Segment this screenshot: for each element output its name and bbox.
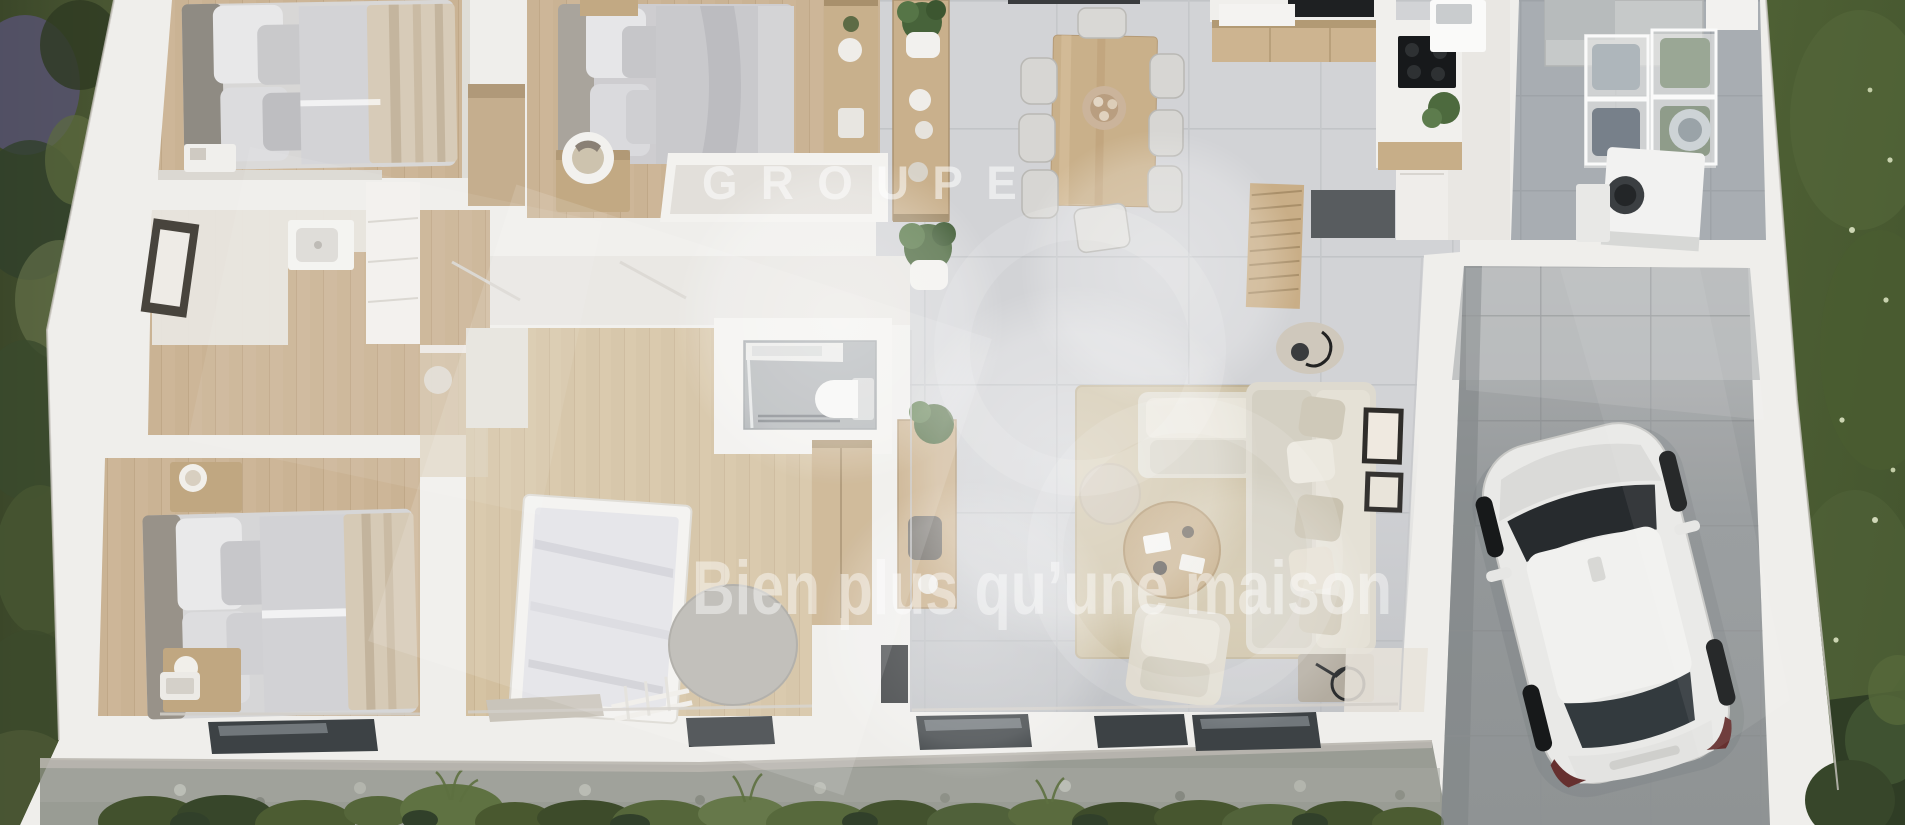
svg-text:Bien plus qu’une maison: Bien plus qu’une maison	[692, 546, 1392, 631]
svg-text:GROUPE: GROUPE	[702, 156, 1040, 209]
